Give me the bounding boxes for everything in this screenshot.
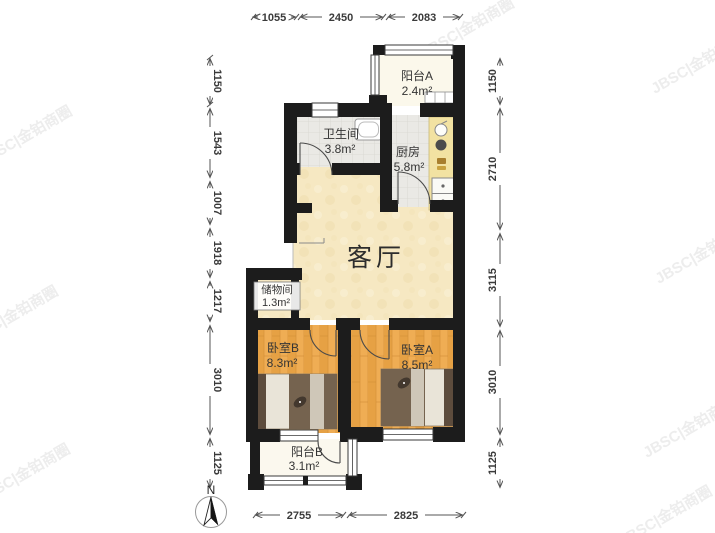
dim-top-1: 1055: [251, 12, 299, 24]
dim-value: 1055: [262, 12, 286, 24]
dim-value: 1150: [211, 69, 223, 93]
dim-value: 1918: [211, 241, 223, 265]
room-label-bedroom-a: 卧室A: [401, 342, 433, 357]
room-area-bedroom-a: 8.5m²: [402, 358, 433, 372]
compass-label: N: [207, 483, 216, 497]
compass-north-icon: N: [196, 483, 227, 528]
watermark-text: JBSC|金铂商圈: [0, 102, 75, 170]
dim-left-3: 1007: [210, 182, 223, 225]
floor-plan-page: JBSC|金铂商圈 JBSC|金铂商圈 JBSC|金铂商圈 JBSC|金铂商圈 …: [0, 0, 715, 533]
dim-right-1: 1150: [487, 59, 500, 105]
room-label-bedroom-b: 卧室B: [267, 340, 299, 355]
bed-icon: [257, 374, 337, 429]
dim-left-2: 1543: [210, 109, 223, 178]
window-balcony-a-left: [371, 55, 379, 95]
window-bedroom-a: [383, 429, 433, 440]
stove-burner-icon: [436, 140, 447, 151]
dim-left-6: 3010: [210, 326, 223, 435]
window-balcony-a-top: [385, 45, 453, 55]
dim-left-7: 1125: [210, 439, 223, 488]
dim-value: 1543: [211, 131, 223, 155]
room-label-balcony-b: 阳台B: [291, 444, 323, 459]
bathtub-icon: [355, 119, 382, 140]
north-arrow-right: [211, 497, 218, 525]
watermark-text: JBSC|金铂商圈: [640, 394, 715, 462]
dim-right-4: 3010: [487, 331, 500, 435]
room-label-storage: 储物间: [261, 283, 293, 296]
dim-value: 2825: [394, 510, 418, 522]
dim-right-2: 2710: [487, 109, 500, 230]
dim-left-1: 1150: [207, 55, 223, 107]
bed-icon: [381, 369, 453, 426]
dim-value: 2450: [329, 12, 353, 24]
storage-label-box: 储物间 1.3m²: [254, 282, 300, 310]
sink-icon: [435, 124, 447, 136]
dim-value: 2083: [412, 12, 436, 24]
dim-value: 3115: [487, 268, 499, 292]
dim-value: 1217: [211, 289, 223, 313]
watermark-text: JBSC|金铂商圈: [616, 482, 715, 533]
window-balcony-b-right: [348, 439, 357, 476]
dim-left-4: 1918: [210, 229, 223, 278]
dim-value: 3010: [211, 368, 223, 392]
watermark-text: JBSC|金铂商圈: [648, 30, 715, 98]
dim-value: 2755: [287, 510, 311, 522]
watermark-text: JBSC|金铂商圈: [0, 282, 61, 350]
counter-item: [437, 158, 446, 164]
room-label-living: 客厅: [347, 244, 405, 272]
dim-value: 1125: [211, 451, 223, 475]
room-area-storage: 1.3m²: [262, 297, 290, 309]
dim-right-3: 3115: [487, 234, 500, 327]
room-area-balcony-a: 2.4m²: [402, 84, 433, 98]
window-bathroom: [312, 103, 338, 117]
dim-value: 3010: [487, 370, 499, 394]
window-bedroom-b: [280, 430, 318, 441]
room-area-bedroom-b: 8.3m²: [267, 356, 298, 370]
dim-bottom-1: 2755: [253, 510, 346, 522]
dim-top-2: 2450: [298, 12, 386, 24]
kitchen-counter: [429, 117, 455, 210]
dim-value: 1125: [487, 451, 499, 475]
room-area-kitchen: 5.8m²: [394, 160, 425, 174]
dim-left-5: 1217: [210, 282, 223, 322]
north-arrow-left: [204, 497, 211, 525]
bedroom-divider-wall: [338, 318, 351, 432]
room-label-balcony-a: 阳台A: [401, 68, 433, 83]
window-balcony-b-bottom: [264, 476, 346, 485]
watermark-text: JBSC|金铂商圈: [652, 220, 715, 288]
dim-value: 1007: [211, 191, 223, 215]
room-label-kitchen: 厨房: [396, 144, 420, 159]
room-area-bathroom: 3.8m²: [325, 142, 356, 156]
dim-bottom-2: 2825: [347, 510, 466, 522]
room-area-balcony-b: 3.1m²: [289, 459, 320, 473]
watermark-text: JBSC|金铂商圈: [0, 440, 73, 508]
counter-item: [437, 166, 446, 170]
dim-right-5: 1125: [487, 439, 500, 488]
room-label-bathroom: 卫生间: [323, 127, 359, 141]
dim-top-3: 2083: [386, 12, 463, 24]
floor-plan-svg: JBSC|金铂商圈 JBSC|金铂商圈 JBSC|金铂商圈 JBSC|金铂商圈 …: [0, 0, 715, 533]
dim-value: 1150: [487, 69, 499, 93]
dim-value: 2710: [487, 157, 499, 181]
